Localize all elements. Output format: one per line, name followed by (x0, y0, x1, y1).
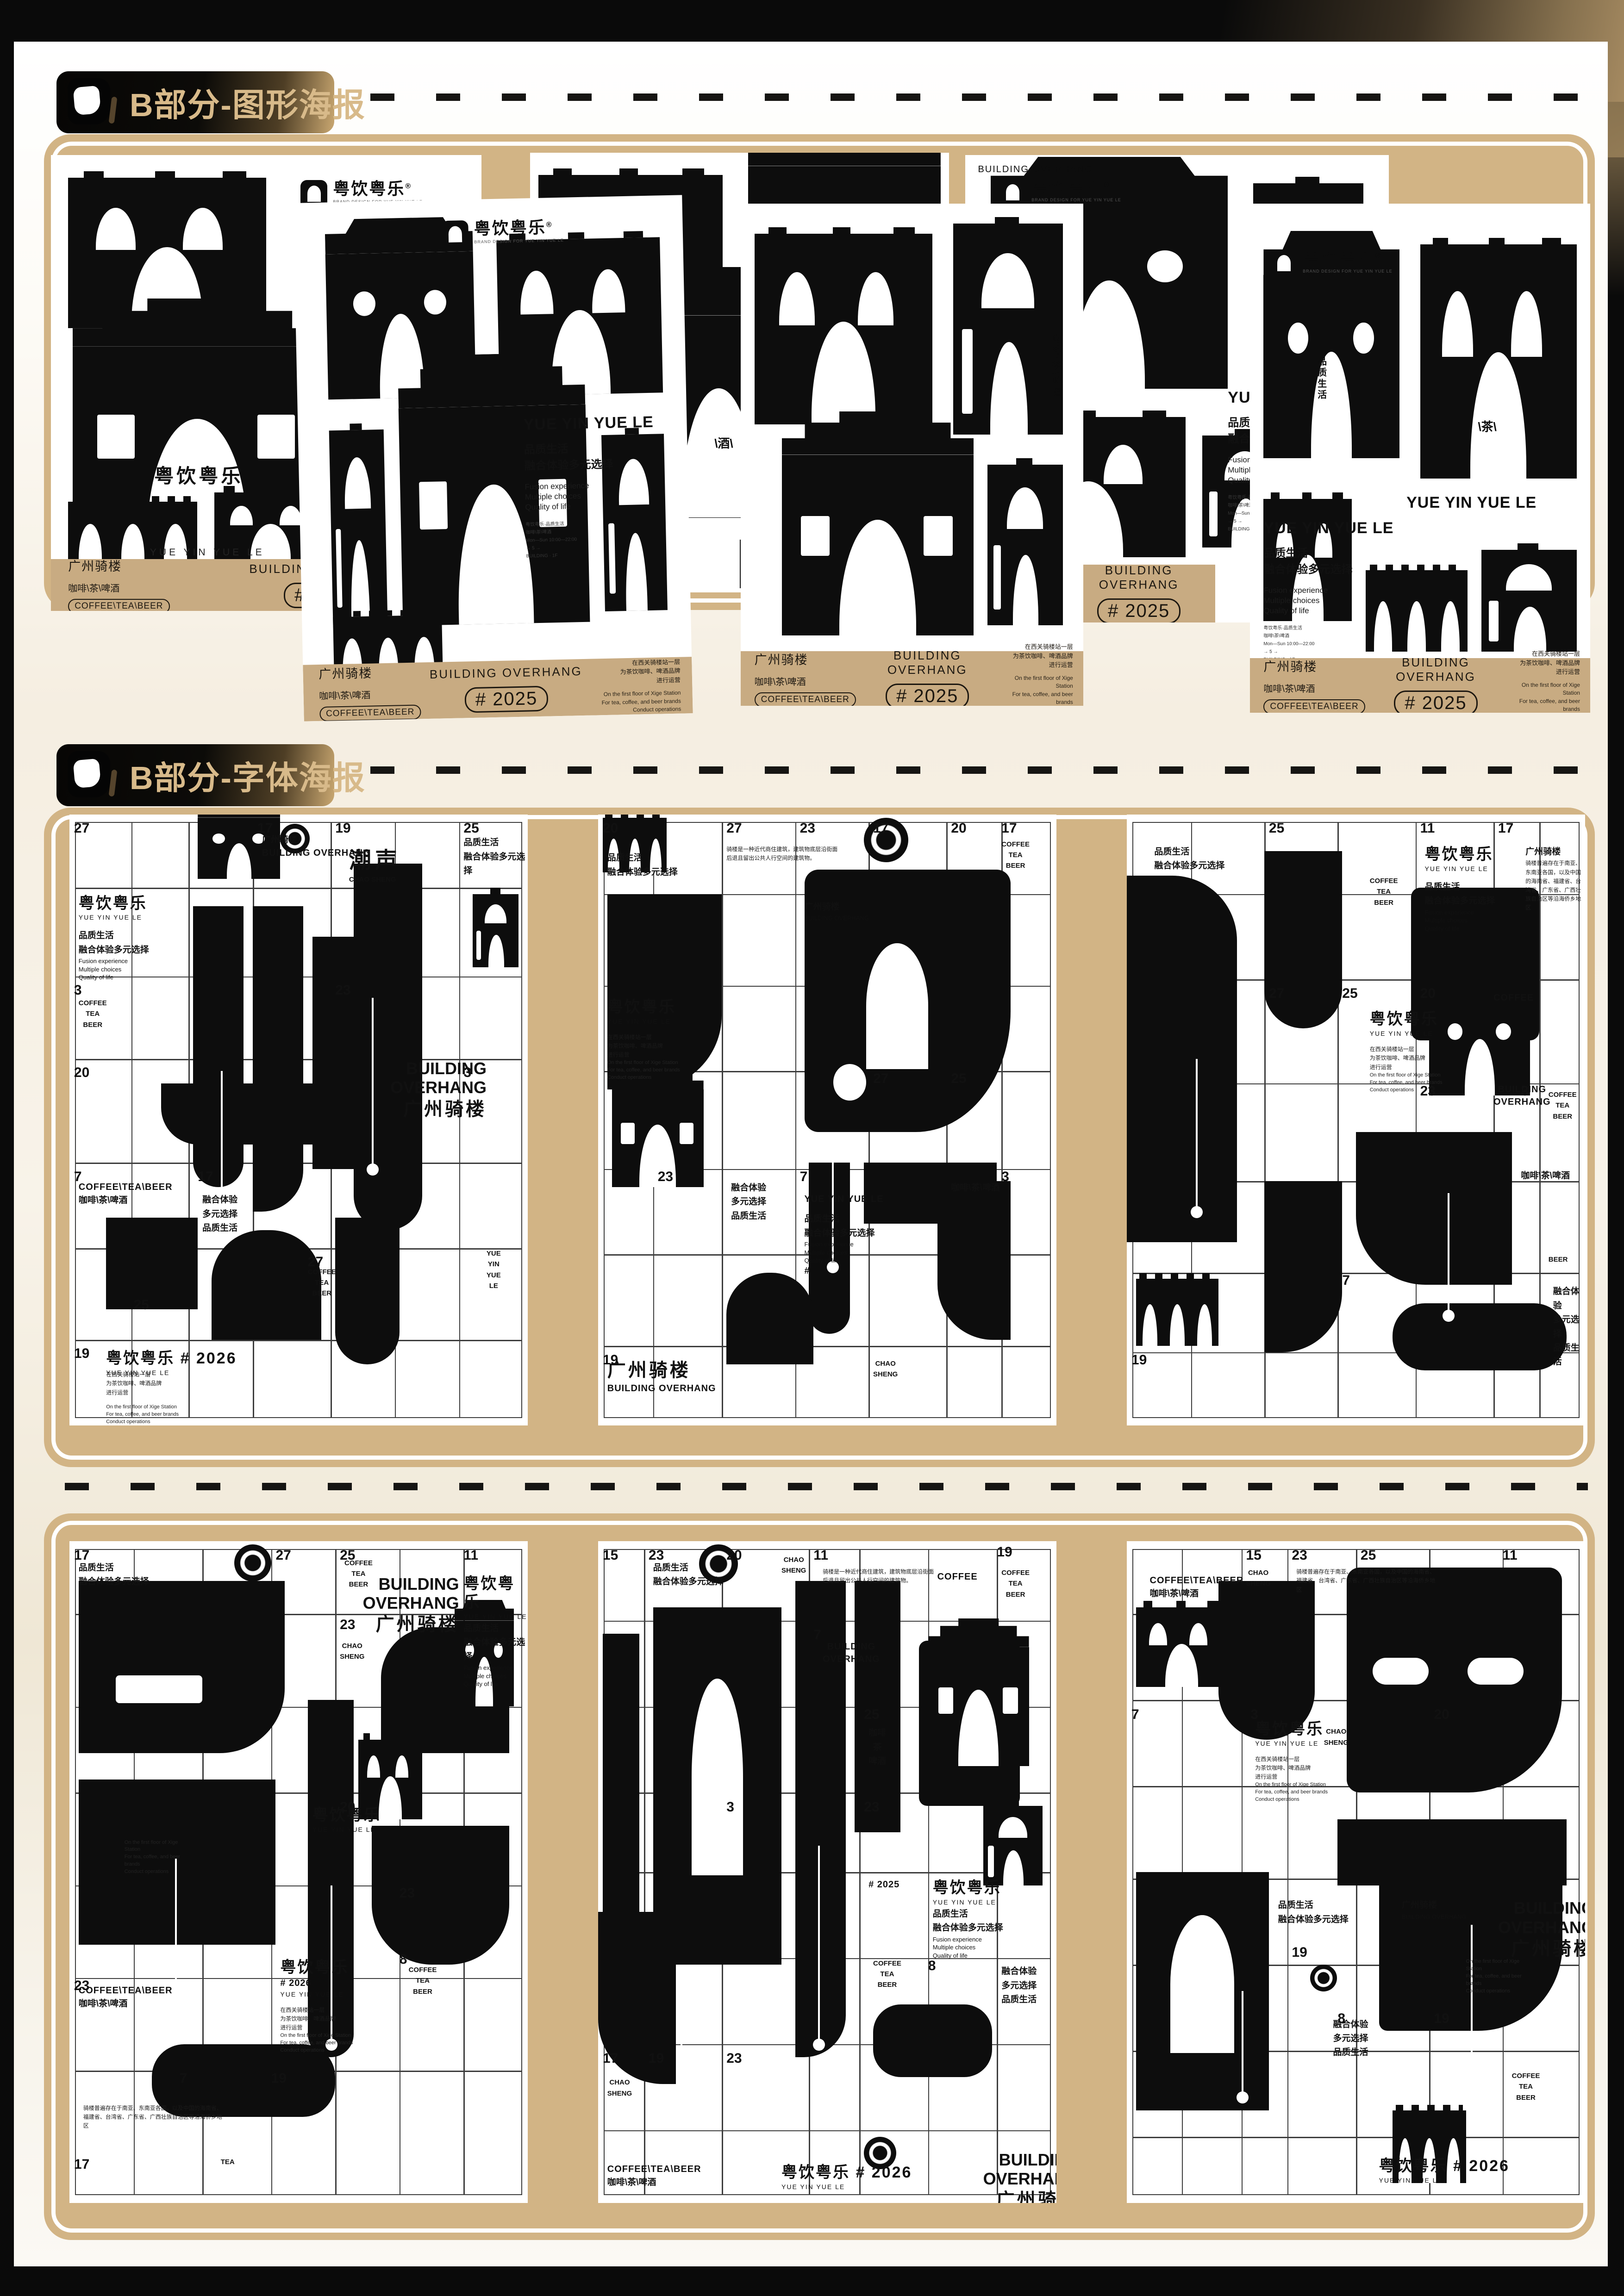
text-block-coffee_slash2: COFFEE\TEA\BEER咖啡\茶\啤酒 (607, 2163, 701, 2190)
grid-cell-number: 8 (400, 1952, 407, 1967)
text-block-brand_year2: 粤饮粤乐 # 2026YUE YIN YUE LE (781, 2163, 912, 2192)
text-block-bo_big: BUILDINGOVERHANG广州骑楼 (363, 1574, 459, 1637)
letterform-glyph (161, 1083, 331, 1145)
arch-logo-cutout (448, 226, 462, 242)
decor (1425, 874, 1495, 880)
letterform-glyph (1356, 1132, 1512, 1285)
text-line: BEER (1001, 1589, 1030, 1600)
text-block-gz_big: 广州骑楼BUILDING OVERHANG (607, 1358, 716, 1395)
text-line: 咖啡\茶\啤酒 (79, 1194, 173, 1207)
text-line: 融合体验多元选择 (1154, 859, 1224, 873)
text-block-fuse3: 融合体验多元选择品质生活 (731, 1181, 766, 1223)
text-line: 品质生活 (463, 1622, 528, 1636)
parapet-ornament (995, 217, 1019, 224)
building-silhouette (1429, 998, 1530, 1095)
footer-building-en: BUILDING OVERHANG (1062, 563, 1215, 592)
grid-cell-number: 17 (1001, 821, 1017, 836)
text-line: YUE YIN YUE LE (781, 2182, 912, 2192)
text-line: Quality of life (805, 1257, 884, 1265)
grid-line-horizontal (604, 2130, 1051, 2132)
decor (1370, 1039, 1443, 1045)
grid-cell-number: 23 (800, 821, 815, 836)
parapet-ornament (1271, 492, 1280, 499)
text-line: 融合体验多元选择 (933, 1921, 1003, 1935)
text-line: 为茶饮咖啡、啤酒品牌 (106, 1379, 179, 1388)
text-block-coffee_stack: COFFEETEABEER (873, 1958, 901, 1991)
footer-center-block: BUILDING OVERHANG# 2025 (856, 648, 999, 706)
text-line: 融合体验 (202, 1193, 237, 1207)
slogan-en-line: Multiple choices (1263, 596, 1399, 606)
text-line: COFFEE (1549, 1089, 1577, 1100)
poster-info-block: YUE YIN YUE LE品质生活融合体验多元选择Fusion experie… (523, 413, 658, 560)
building-silhouette (987, 465, 1063, 625)
arch-window (280, 506, 302, 525)
footer-drinks-pill: COFFEE\TEA\BEER (319, 704, 421, 721)
text-line: 粤饮粤乐 # 2026 (781, 2163, 912, 2182)
footer-right-en-line: For tea, coffee, and beer brands (999, 691, 1073, 706)
text-line: 品质生活 (607, 851, 678, 865)
text-block-tea_line: TEA (221, 2157, 235, 2167)
arch-window (839, 520, 916, 635)
arch-window (1514, 607, 1546, 652)
arch-ring-ornament (234, 1544, 271, 1581)
letterform-glyph (1136, 1872, 1269, 2110)
poster-heading: YUE YIN YUE LE (523, 413, 656, 434)
text-line: OVERHANG (363, 1593, 459, 1612)
poster-info-block: YUE YIN YUE LE品质生活融合体验多元选择Fusion experie… (1263, 519, 1399, 664)
letterform-cutout (692, 1679, 743, 1875)
pendulum-dot (367, 1164, 379, 1176)
text-line: 粤饮粤乐 # 2026 (1379, 2157, 1510, 2176)
arch-logo-cutout (1006, 184, 1019, 200)
arch-window (1353, 323, 1374, 354)
text-block-loc_en: On the first floor of Xige StationFor te… (1466, 1958, 1536, 1995)
text-line: 粤饮粤乐 # 2026 (106, 1349, 237, 1368)
text-block-coffee_stack: COFFEETEABEER (79, 998, 107, 1030)
arch-window (395, 1755, 408, 1778)
pendulum-line (372, 998, 374, 1169)
text-block-origin: 骑楼普遍存在于南亚、东南亚各国，以及中国的海南省、福建省、台湾省、广东省、广西壮… (83, 2104, 222, 2131)
arch-window (1209, 492, 1218, 536)
decor (79, 922, 149, 929)
text-block-yyl_vert: YUEYINYUELE (487, 1248, 501, 1291)
arch-window (1288, 323, 1308, 354)
text-line: Conduct operations (106, 1419, 179, 1425)
text-line: 咖啡 (868, 1726, 886, 1740)
arch-window (779, 272, 815, 325)
text-line: 为茶饮咖啡、啤酒品牌 (280, 2015, 353, 2023)
letterform-cutout (116, 1675, 202, 1703)
text-line: CHAO (1246, 1568, 1270, 1578)
brand-logo-cn: 粤饮粤乐® (1031, 179, 1121, 196)
arch-logo-cutout (307, 186, 321, 202)
text-line: COFFEE (1512, 2071, 1540, 2081)
arch-window (97, 415, 135, 459)
parapet-ornament (833, 227, 850, 234)
text-line: OVERHANG (1493, 1096, 1551, 1108)
text-line: 在西关骑楼站一层 (1370, 1045, 1443, 1054)
text-block-intro: 骑楼是一种近代商住建筑，建筑物底层沿街面后退且留出公共人行空间的建筑物。 (823, 1568, 934, 1585)
text-line: TEA (873, 1969, 901, 1979)
text-line: 品质生活 (1553, 1341, 1585, 1369)
text-line: 品质生活 (805, 1212, 884, 1226)
pendulum-dot (813, 2039, 825, 2051)
fine-print-line: → 5 → (1263, 648, 1399, 656)
text-line: 广州骑楼 (805, 900, 869, 914)
letterform-glyph (212, 1230, 322, 1340)
parapet-ornament (1006, 1799, 1018, 1806)
text-line: Quality of life (463, 1680, 528, 1688)
grid-cell-number: 7 (800, 1169, 808, 1185)
arch-window (183, 208, 223, 250)
grid-cell-number: 27 (276, 1548, 291, 1563)
text-line: BUILDING (823, 1641, 880, 1653)
text-line: CHAO (340, 1641, 364, 1651)
text-line: 粤饮粤乐 (280, 1958, 353, 1977)
text-line: On the first floor of Xige Station (607, 1059, 680, 1067)
letterform-glyph (726, 1273, 813, 1364)
text-line: YUE YIN YUE LE (280, 1990, 353, 1999)
text-block-chao_stack: CHAOSHENG (781, 1555, 806, 1576)
arch-window (424, 290, 446, 315)
text-line: COFFEE\TEA\BEER (79, 1985, 173, 1997)
building-silhouette (329, 429, 387, 628)
parapet-ornament (1489, 238, 1505, 244)
letterform-glyph (1264, 1181, 1342, 1352)
arch-window (592, 269, 625, 313)
text-line: YUE YIN YUE LE (933, 1898, 1003, 1907)
graphic-poster-6: 粤饮粤乐®BRAND DESIGN FOR YUE YIN YUE LEYUE … (1250, 204, 1590, 713)
text-line: 进行运营 (106, 1388, 179, 1397)
text-line: 骑楼是一种近代商住建筑，建筑物底层沿街面后退且留出公共人行空间的建筑物。 (823, 1568, 934, 1585)
arch-window (1448, 1023, 1463, 1040)
text-line: YIN (487, 1259, 501, 1269)
grid-line-horizontal (75, 1340, 522, 1341)
parapet-ornament (155, 171, 175, 178)
letterform-cutout (1170, 1915, 1234, 2053)
text-block-coffee_slash2: COFFEE\TEA\BEER咖啡\茶\啤酒 (79, 1181, 173, 1207)
grid-cell-number: 11 (1420, 821, 1435, 836)
arch-window (1465, 1039, 1495, 1095)
footer-drinks-pill: COFFEE\TEA\BEER (68, 599, 169, 611)
text-line: 品质生活 (653, 1561, 724, 1575)
text-line: Fusion experience (805, 1240, 884, 1249)
text-line: COFFEE (873, 1958, 901, 1969)
text-line: YUE YIN YUE LE (1370, 1029, 1443, 1039)
text-block-coffee_stack: COFFEETEABEER (1370, 876, 1398, 908)
arch-window (488, 935, 504, 967)
text-line: OVERHANG (983, 2169, 1056, 2188)
slogan-en-line: Quality of life (1263, 606, 1399, 616)
footer-right-cn-line: 在西关骑楼站一层 (1506, 649, 1580, 659)
text-line: 粤饮粤乐 (933, 1879, 1003, 1898)
text-line: 咖啡\茶\啤酒 (607, 2176, 701, 2190)
text-line: 品质生活 (933, 1907, 1003, 1921)
text-line: YUE YIN YUE LE (312, 1825, 381, 1835)
arch-window (1441, 601, 1460, 652)
text-line: SHENG (1246, 1578, 1270, 1589)
text-line: YUE (487, 1270, 501, 1281)
pendulum-line (1242, 1991, 1243, 2097)
letterform-glyph (253, 906, 303, 1212)
text-line: TEA (1370, 886, 1398, 897)
type-poster-2: 2027172320177192327253品质生活融合体验多元选择骑楼是一种近… (598, 815, 1056, 1425)
parapet-ornament (223, 171, 246, 178)
parapet-ornament (893, 227, 915, 234)
footer-right-en-line: For tea, coffee, and beer brands (1506, 697, 1580, 713)
poster-footer: 广州骑楼咖啡\茶\啤酒COFFEE\TEA\BEERBUILDING OVERH… (1250, 658, 1590, 713)
text-block-bo_mid: BUILDINGOVERHANG (1493, 1083, 1551, 1108)
arch-window (1013, 555, 1038, 626)
brand-logo-text: 粤饮粤乐®BRAND DESIGN FOR YUE YIN YUE LE (1031, 179, 1121, 203)
text-block-brand_q_en: 粤饮粤乐YUE YIN YUE LE品质生活融合体验多元选择Fusion exp… (933, 1879, 1003, 1960)
arch-window (801, 516, 830, 556)
text-line: COFFEE (1493, 992, 1534, 1004)
text-line: COFFEE (308, 1267, 336, 1277)
letterform-glyph (372, 1826, 509, 1965)
footer-right-en: On the first floor of Xige StationFor te… (999, 674, 1073, 706)
footer-title-cn: 广州骑楼 (1263, 657, 1365, 675)
text-line: Conduct operations (125, 1868, 194, 1876)
brand-logo-tagline: BRAND DESIGN FOR YUE YIN YUE LE (474, 237, 564, 244)
footer-right-cn-line: 在西关骑楼站一层 (999, 642, 1073, 652)
text-line: 品质生活 (463, 836, 528, 850)
text-block-q12: 品质生活融合体验多元选择 (1154, 845, 1224, 873)
arch-logo-cutout (1277, 255, 1291, 271)
arch-window (379, 1776, 402, 1819)
footer-right-cn-line: 进行运营 (601, 675, 681, 686)
poster-footer: 广州骑楼咖啡\茶\啤酒COFFEE\TEA\BEERBUILDING OVERH… (741, 651, 1083, 706)
text-line: Conduct operations (280, 2047, 353, 2054)
grid-cell-number: 15 (603, 1548, 618, 1563)
building-silhouette (782, 455, 974, 636)
text-line: 为茶饮咖啡、啤酒品牌 (607, 1042, 680, 1051)
text-line: SHENG (340, 1651, 364, 1662)
arch-window (1511, 291, 1543, 357)
text-line: CHAO (1324, 1726, 1349, 1737)
arch-window (212, 834, 225, 844)
text-block-bo_big: BUILDINGOVERHANG广州骑楼 (1498, 1898, 1585, 1961)
text-line: 潮声 (349, 842, 401, 874)
arch-window (1165, 1644, 1198, 1687)
slogan-en-line: Fusion experience (1263, 585, 1399, 596)
text-line: BEER (873, 1979, 901, 1990)
text-line: 品质生活 (1425, 880, 1495, 894)
letterform-glyph (193, 906, 244, 1187)
text-line: 为茶饮咖啡、啤酒品牌 (1255, 1764, 1328, 1773)
text-line: BEER (1512, 2092, 1540, 2103)
footer-right-en-line: On the first floor of Xige Station (999, 674, 1073, 691)
letterform-glyph (1393, 1303, 1567, 1370)
grid-cell-number: 11 (463, 1548, 478, 1563)
text-line: Fusion experience (933, 1935, 1003, 1944)
text-line: Conduct operations (1255, 1796, 1328, 1804)
text-line: CHAO SHENG (349, 874, 401, 885)
text-line: 融合体验 (1333, 2018, 1368, 2032)
text-block-coffee_line: COFFEE (937, 1571, 978, 1583)
slogan-cn: 融合体验多元选择 (524, 456, 656, 475)
footer-title-cn: 广州骑楼 (755, 650, 856, 668)
poster-caption-jiu_arch: \酒\ (714, 434, 733, 451)
text-line: For tea, coffee, and beer brands (1370, 1079, 1443, 1087)
grid-line-vertical (722, 822, 723, 1418)
text-block-q12: 品质生活融合体验多元选择 (463, 836, 528, 878)
text-block-intro: 骑楼是一种近代商住建筑，建筑物底层沿街面后退且留出公共人行空间的建筑物。 (726, 845, 837, 863)
text-line: 品质生活 (1333, 2046, 1368, 2060)
parapet-ornament (1176, 1601, 1186, 1607)
text-block-chao: 潮声CHAO SHENG (349, 842, 401, 885)
text-line: Multiple choices (79, 965, 149, 974)
text-line: Multiple choices (805, 1249, 884, 1257)
grid-cell-number: 11 (813, 1548, 828, 1563)
text-block-chao_stack: CHAOSHENG (607, 2077, 632, 2099)
grid-cell-number: 7 (180, 2071, 187, 2086)
footer-drinks-cn: 咖啡\茶\啤酒 (68, 581, 169, 594)
grid-cell-number: 27 (74, 821, 89, 836)
text-block-brand_q_en: 粤饮粤乐YUE YIN YUE LE品质生活融合体验多元选择Fusion exp… (463, 1574, 528, 1688)
arch-window (1149, 1623, 1168, 1645)
page-background: B部分-图形海报 粤饮粤乐®BRAND DESIGN FOR YUE YIN Y… (0, 0, 1624, 2296)
text-line: YUE YIN YUE LE (79, 913, 149, 922)
parapet-ornament (619, 168, 638, 175)
text-line: COFFEE\TEA\BEER (79, 1181, 173, 1194)
section-header-typography: B部分-字体海报 (56, 744, 334, 806)
arch-logo-icon (1270, 249, 1297, 275)
text-block-coffee_line: COFFEE (1493, 992, 1534, 1004)
text-line: YUE YIN YUE LE (1379, 2176, 1510, 2185)
arch-window (1003, 1687, 1018, 1714)
text-block-gz_origin: 广州骑楼骑楼普遍存在于南亚、东南亚各国，以及中国的海南省、福建省、台湾省、广东省… (1525, 845, 1581, 913)
arch-window (1489, 601, 1499, 641)
footer-right-en-line: Conduct operations (602, 705, 681, 715)
text-line: 骑楼是一种近代商住建筑，建筑物底层沿街面后退且留出公共人行空间的建筑物。 (726, 845, 837, 863)
letterform-glyph (873, 2004, 992, 2077)
footer-title-cn: 广州骑楼 (68, 556, 169, 574)
grid-cell-number: 19 (997, 1544, 1012, 1560)
type-poster-5: 15232011197253238171923品质生活融合体验多元选择CHAOS… (598, 1541, 1056, 2203)
text-block-q12: 品质生活融合体验多元选择 (653, 1561, 724, 1589)
letterform-cutout (866, 943, 928, 1069)
text-block-chao_stack: CHAOSHENG (1324, 1726, 1349, 1748)
brand-logo-text: 粤饮粤乐®BRAND DESIGN FOR YUE YIN YUE LE (474, 218, 564, 244)
text-line: For tea, coffee, and beer brands (1255, 1789, 1328, 1796)
text-line: 粤饮粤乐 (1370, 1010, 1443, 1029)
text-block-coffee_stack: COFFEETEABEER (1001, 839, 1030, 871)
text-block-chao_stack: CHAOSHENG (1246, 1568, 1270, 1589)
text-line: COFFEE (409, 1965, 437, 1975)
text-block-beer_line: BEER (1549, 1254, 1568, 1265)
text-line: 咖啡\茶\啤酒 (79, 1997, 173, 2011)
arch-window (1074, 280, 1145, 389)
grid-cell-number: 25 (1361, 1548, 1376, 1563)
pendulum-dot (675, 2091, 687, 2103)
parapet-ornament (387, 1733, 393, 1740)
dashed-divider (370, 766, 1593, 774)
text-line: 粤饮粤乐 (607, 998, 680, 1017)
parapet-teeth (1139, 1273, 1215, 1279)
text-line: 融合体验多元选择 (79, 943, 149, 957)
arch-window (353, 291, 375, 316)
footer-center-block: BUILDING OVERHANG# 2025 (430, 664, 583, 714)
grid-line-horizontal (604, 1346, 1051, 1347)
text-line: SHENG (1324, 1737, 1349, 1748)
grid-cell-number: 17 (873, 821, 888, 836)
text-line: 品质生活 (79, 929, 149, 943)
footer-right-cn-line: 进行运营 (999, 660, 1073, 670)
grid-cell-number: 23 (864, 1799, 879, 1815)
footer-drinks-cn: 咖啡\茶\啤酒 (1263, 681, 1365, 695)
text-line: COFFEE (1001, 1568, 1030, 1578)
arch-window (812, 322, 876, 425)
parapet-ornament (768, 227, 786, 234)
arch-window (990, 342, 1028, 435)
text-block-brand_small: 粤饮粤乐YUE YIN YUE LE (312, 1806, 381, 1835)
slogan-cn: 融合体验多元选择 (1263, 562, 1399, 578)
parapet-ornament (553, 168, 572, 175)
text-line: 为茶饮咖啡、啤酒品牌 (1370, 1054, 1443, 1063)
letterform-glyph (1347, 1568, 1562, 1792)
text-line: 粤饮粤乐 (79, 894, 149, 913)
brand-logo-cn: 粤饮粤乐® (474, 218, 563, 238)
footer-drinks-pill: COFFEE\TEA\BEER (1263, 699, 1365, 713)
text-block-origin: 骑楼普遍存在于南亚、东南亚各国，以及中国的海南省、福建省、台湾省、广东省、广西壮… (1296, 1568, 1435, 1594)
grid-cell-number: 20 (1420, 986, 1436, 1002)
pendulum-line (1196, 1059, 1198, 1212)
text-line: 品质生活 (1278, 1898, 1349, 1912)
slogan-en: Fusion experienceMultiple choicesQuality… (1263, 585, 1399, 616)
grid-cell-number: 19 (1434, 2011, 1449, 2027)
arch-window (367, 1755, 380, 1778)
text-line: TEA (1001, 1578, 1030, 1589)
parapet-ornament (1332, 492, 1343, 499)
footer-center-block: BUILDING OVERHANG# 2025 (1365, 655, 1507, 713)
poster-caption-brand_arch: 粤饮粤乐 (154, 460, 243, 489)
text-line: SHENG (781, 1565, 806, 1576)
text-line: 品质生活 (79, 1561, 149, 1575)
text-line: 咖啡\茶\啤酒 (1150, 1587, 1244, 1601)
parapet-ornament (408, 1733, 416, 1740)
pendulum-dot (1466, 2065, 1478, 2077)
registered-mark: ® (405, 182, 412, 190)
grid-cell-number: 3 (74, 983, 82, 998)
text-block-brand_loc: 粤饮粤乐YUE YIN YUE LE在西关骑楼站一层为茶饮咖啡、啤酒品牌进行运营… (607, 998, 680, 1082)
grid-cell-number: 25 (463, 821, 479, 836)
text-line: TEA (221, 2157, 235, 2167)
text-line: BUILDING (983, 2150, 1056, 2169)
text-line: COFFEE\TEA\BEER (1150, 1574, 1244, 1587)
arch-window (962, 329, 973, 413)
text-block-drinks_vert3: 咖啡茶啤酒 (868, 1726, 886, 1768)
letterform-glyph (354, 864, 423, 1230)
text-block-loc_block: 在西关骑楼站一层为茶饮咖啡、啤酒品牌进行运营On the first floor… (106, 1370, 179, 1425)
brand-logo-text: 粤饮粤乐®BRAND DESIGN FOR YUE YIN YUE LE (1303, 249, 1393, 274)
text-line: BUILDING (1498, 1898, 1585, 1917)
text-line: SHENG (607, 2088, 632, 2099)
registered-mark: ® (546, 221, 553, 229)
decor (805, 1206, 884, 1212)
text-line: For tea, coffee, and beer brands (106, 1411, 179, 1419)
footer-right-cn: 在西关骑楼站一层为茶饮咖啡、啤酒品牌进行运营 (1506, 649, 1580, 677)
text-line: COFFEE\TEA\BEER (607, 2163, 701, 2176)
text-line: 融合体验多元选择 (79, 1575, 149, 1589)
grid-cell-number: 20 (603, 821, 618, 836)
text-line: 品质生活 (1154, 845, 1224, 859)
arch-window (1506, 564, 1552, 591)
text-line: # 2025 (868, 1879, 899, 1891)
section-header-graphic: B部分-图形海报 (56, 71, 334, 133)
text-block-drinks_line: 咖啡\茶\啤酒 (951, 1181, 1000, 1195)
text-line: Multiple choices (463, 1672, 528, 1680)
